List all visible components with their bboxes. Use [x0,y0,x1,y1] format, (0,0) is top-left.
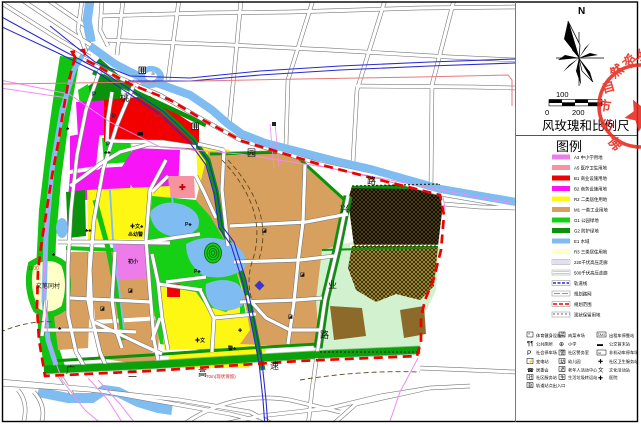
svg-text:轨道线: 轨道线 [574,280,588,287]
svg-text:TAXI: TAXI [598,333,605,337]
svg-text:✚文: ✚文 [195,337,206,344]
svg-text:⛲: ⛲ [150,69,156,76]
svg-text:现状保留用地: 现状保留用地 [574,312,601,319]
svg-text:N: N [578,6,585,17]
svg-text:G1 公园绿地: G1 公园绿地 [574,217,599,224]
svg-text:◪: ◪ [288,314,293,320]
svg-text:500千伏高压走廊: 500千伏高压走廊 [574,270,608,277]
svg-text:轨道站点出入口: 轨道站点出入口 [536,382,565,389]
svg-text:文: 文 [598,366,604,374]
svg-text:兴: 兴 [340,204,349,214]
svg-text:医院: 医院 [609,374,618,381]
svg-text:220千伏高压走廊: 220千伏高压走廊 [574,259,608,266]
svg-text:70m(现状保留): 70m(现状保留) [206,373,236,380]
svg-text:社区卫生服务站: 社区卫生服务站 [609,358,638,365]
svg-text:✚: ✚ [598,375,603,382]
svg-text:P: P [106,142,110,148]
svg-text:社会停车场: 社会停车场 [536,349,557,356]
svg-text:100: 100 [556,90,569,99]
svg-text:生: 生 [560,374,565,380]
svg-text:R2 二类居住用地: R2 二类居住用地 [574,196,608,203]
svg-text:规划范围: 规划范围 [574,301,592,308]
svg-text:*: * [528,332,530,337]
svg-text:体育健身设施: 体育健身设施 [536,332,562,339]
svg-text:初小: 初小 [128,258,138,265]
svg-text:♨幼警: ♨幼警 [128,231,143,238]
svg-text:▬: ▬ [597,342,603,348]
svg-text:◪: ◪ [100,306,105,312]
svg-text:社区警务室: 社区警务室 [568,349,589,356]
svg-text:公共厕所: 公共厕所 [536,341,553,348]
svg-text:A5 医疗卫生用地: A5 医疗卫生用地 [574,165,608,172]
svg-text:文化活动站: 文化活动站 [609,367,630,374]
svg-text:业: 业 [328,280,337,290]
svg-text:警: 警 [560,349,565,356]
svg-text:社: 社 [528,374,533,381]
svg-text:110KV: 110KV [153,113,166,118]
svg-text:市: 市 [597,98,612,115]
svg-text:桃: 桃 [120,92,129,103]
svg-text:✚文♣: ✚文♣ [130,223,144,230]
svg-text:P: P [92,92,96,98]
svg-text:R3 三类居住用地: R3 三类居住用地 [574,249,608,256]
svg-text:M1 一类工业用地: M1 一类工业用地 [574,207,608,214]
svg-text:文笔同村: 文笔同村 [36,282,60,290]
svg-text:◪: ◪ [262,228,267,234]
svg-text:⚍: ⚍ [598,351,601,355]
svg-text:广: 广 [66,364,75,375]
svg-text:P♣: P♣ [194,269,201,275]
svg-text:生活垃圾转运站: 生活垃圾转运站 [568,374,597,381]
svg-text:A3 中小学用地: A3 中小学用地 [574,154,603,161]
svg-text:P: P [112,114,116,120]
svg-text:园: 园 [247,148,256,158]
svg-text:速: 速 [270,361,279,371]
svg-text:图例: 图例 [556,139,582,154]
svg-text:☎: ☎ [527,367,535,374]
svg-text:变电站: 变电站 [536,358,549,365]
svg-text:非机动车停车场: 非机动车停车场 [609,349,638,356]
svg-text:社区服务站: 社区服务站 [536,374,557,381]
svg-text:肉菜市场: 肉菜市场 [568,332,585,339]
svg-text:⊕: ⊕ [559,342,564,348]
svg-text:源: 源 [636,48,641,63]
svg-text:♣♣: ♣♣ [85,228,92,234]
svg-text:0: 0 [545,108,549,117]
svg-text:小学: 小学 [568,341,576,348]
svg-text:二: 二 [128,369,137,379]
svg-text:警♣: 警♣ [227,345,237,352]
svg-text:◪: ◪ [300,272,305,278]
svg-text:B2 商务设施用地: B2 商务设施用地 [574,186,608,193]
svg-text:1100: 1100 [28,266,39,272]
svg-text:◪: ◪ [128,288,133,294]
svg-text:出租车停靠站: 出租车停靠站 [609,332,634,339]
svg-text:♣♣: ♣♣ [104,150,111,156]
svg-text:轨: 轨 [528,382,533,389]
svg-text:E1 水域: E1 水域 [574,238,590,244]
svg-text:¶¶: ¶¶ [527,342,533,348]
svg-text:P: P [527,350,531,357]
svg-text:居委会: 居委会 [536,367,549,374]
svg-text:P♣: P♣ [185,222,192,228]
svg-text:老年人活动中心: 老年人活动中心 [568,367,598,374]
svg-text:路: 路 [320,329,329,340]
svg-text:公交首末站: 公交首末站 [609,341,630,348]
svg-text:200: 200 [572,108,585,117]
svg-text:幼儿园: 幼儿园 [568,358,581,365]
svg-text:路: 路 [367,175,376,186]
svg-text:B1 商业设施用地: B1 商业设施用地 [574,175,608,182]
svg-text:G2 防护绿地: G2 防护绿地 [574,228,599,235]
svg-text:老: 老 [560,366,565,372]
svg-text:规划路网: 规划路网 [574,291,592,298]
svg-text:幼: 幼 [560,358,565,365]
svg-text:✚: ✚ [598,359,603,366]
svg-text:✚: ✚ [179,183,186,192]
